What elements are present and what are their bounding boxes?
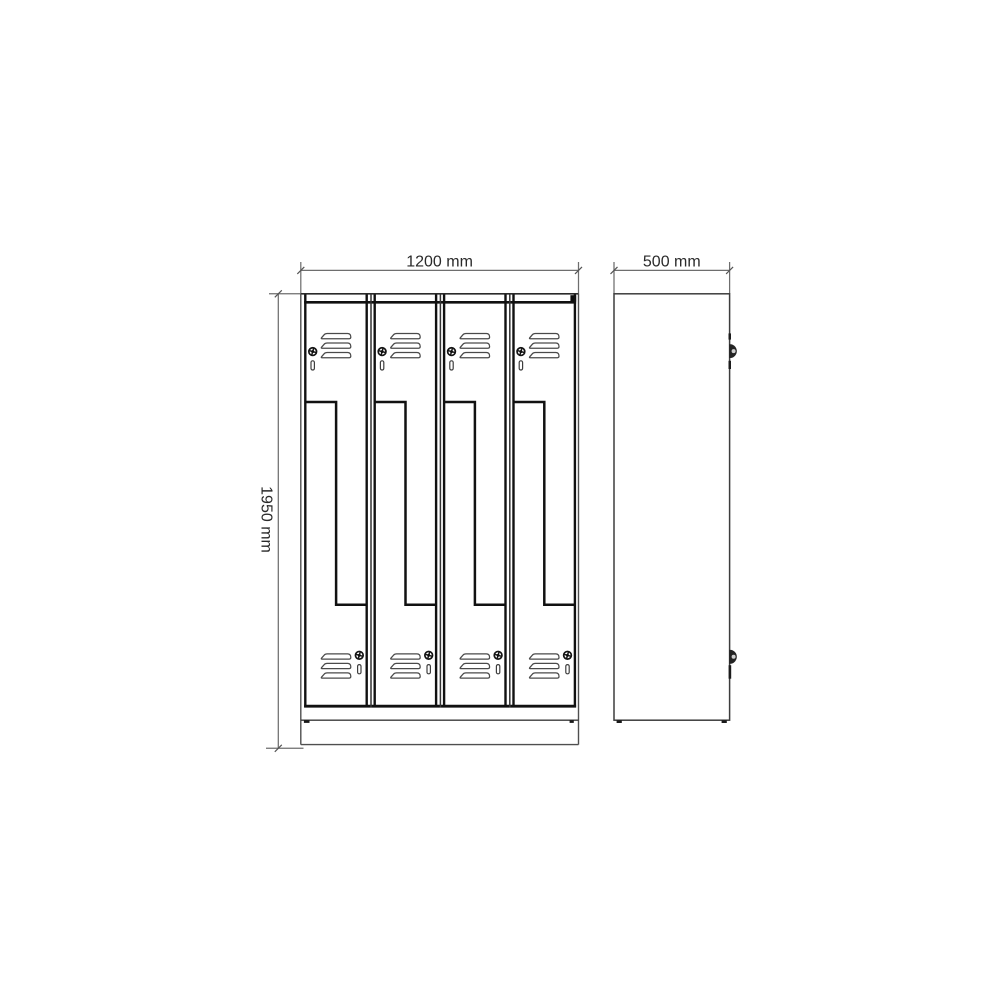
svg-text:500 mm: 500 mm [643, 253, 701, 270]
svg-text:1200 mm: 1200 mm [406, 253, 473, 270]
svg-text:1950 mm: 1950 mm [257, 486, 274, 553]
